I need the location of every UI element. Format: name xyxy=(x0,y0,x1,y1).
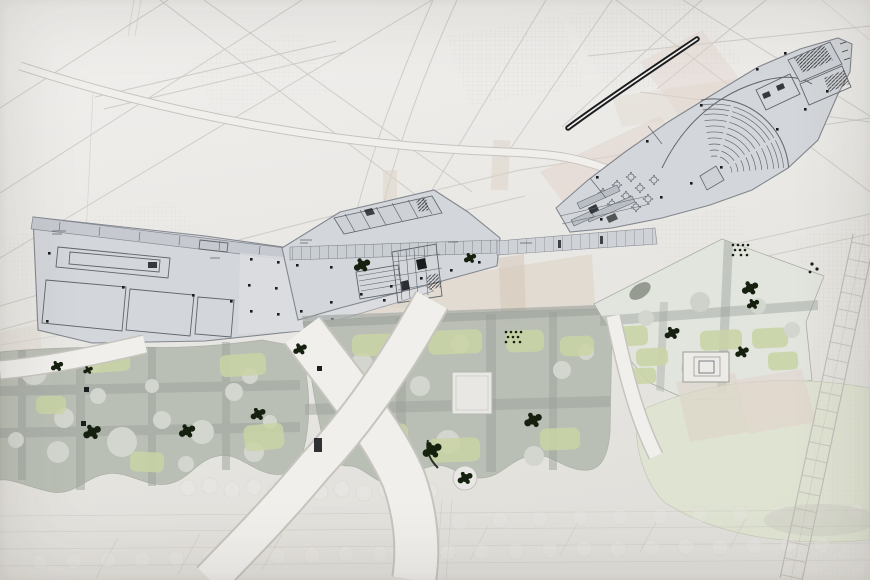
pavilion-footprint xyxy=(683,352,729,382)
masterplan-photo: Photograph of an architectural masterpla… xyxy=(0,0,870,580)
paving-square xyxy=(452,372,492,414)
